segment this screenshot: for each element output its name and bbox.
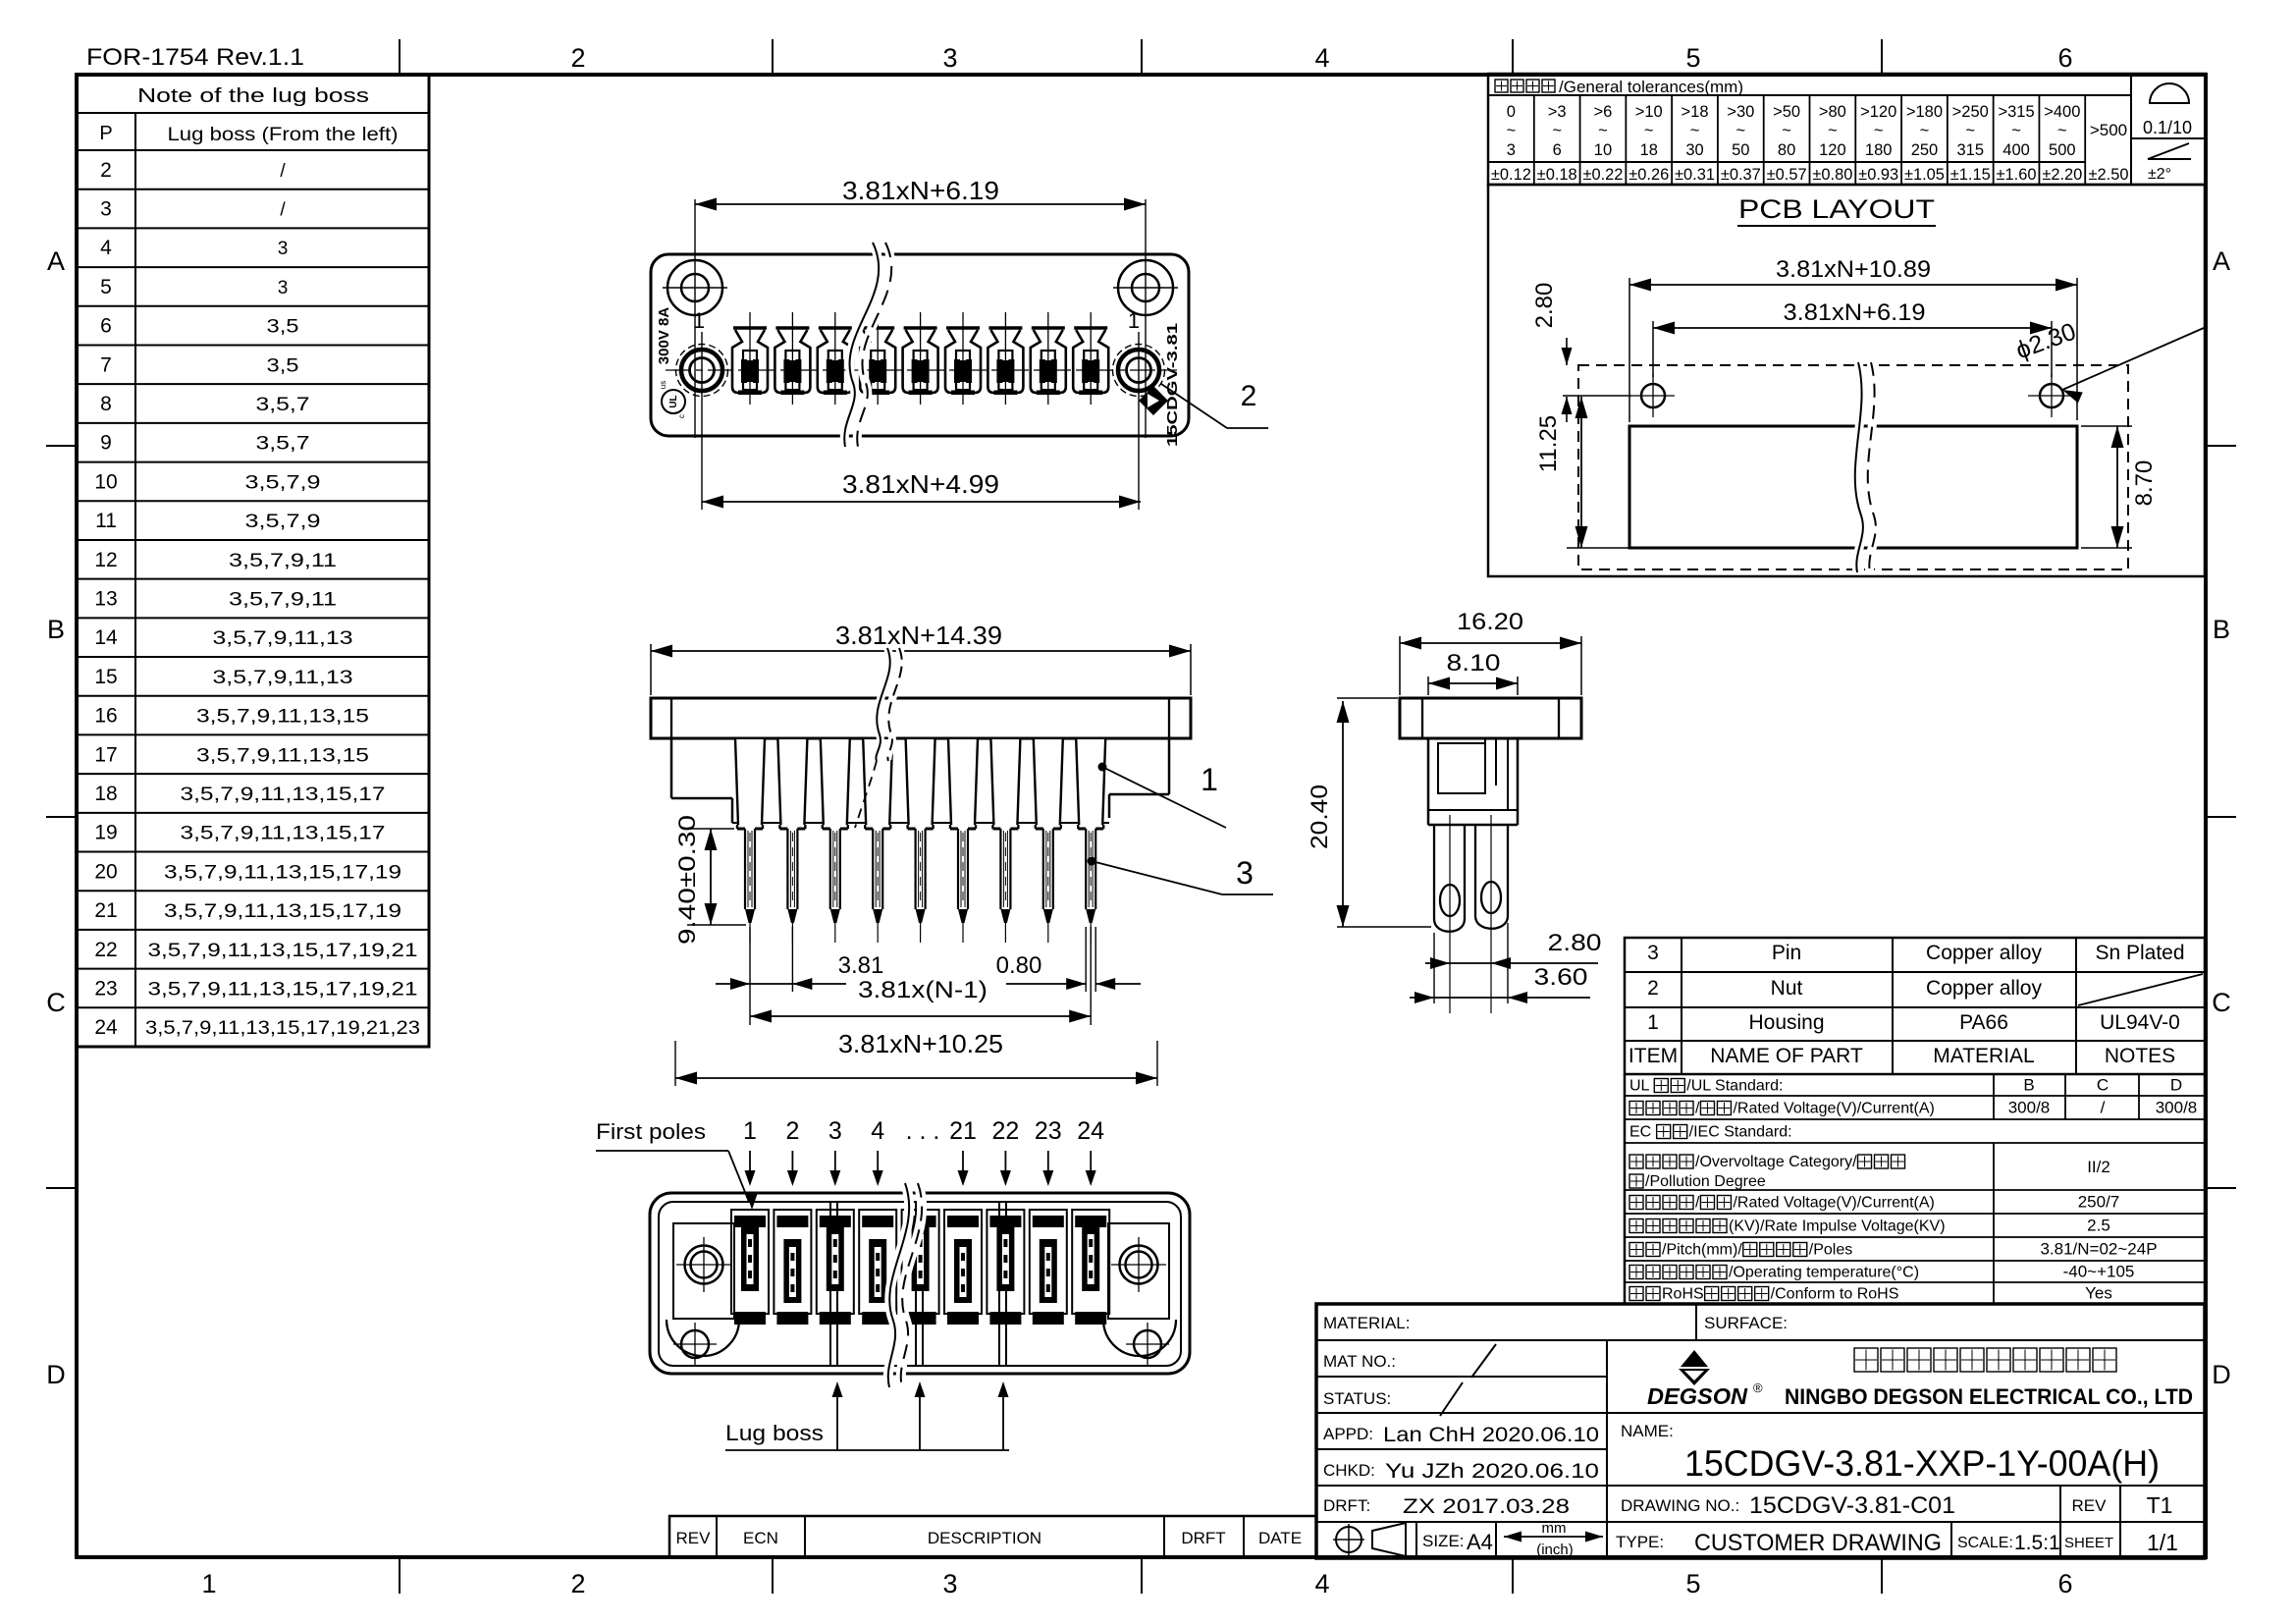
svg-text:>250: >250	[1952, 103, 1989, 121]
svg-text:22: 22	[94, 939, 117, 961]
svg-text:7: 7	[100, 353, 112, 376]
svg-text:Copper alloy: Copper alloy	[1926, 977, 2042, 1000]
svg-text:3,5,7,9,11,13,15: 3,5,7,9,11,13,15	[196, 745, 369, 766]
svg-text:(KV)/Rate Impulse Voltage(KV): (KV)/Rate Impulse Voltage(KV)	[1729, 1218, 1946, 1235]
svg-text:mm: mm	[1542, 1520, 1567, 1537]
svg-text:MAT NO.:: MAT NO.:	[1323, 1352, 1396, 1371]
svg-text:3,5,7: 3,5,7	[256, 395, 310, 415]
svg-text:3.81xN+14.39: 3.81xN+14.39	[835, 621, 1002, 650]
svg-text:DRFT: DRFT	[1181, 1529, 1225, 1547]
svg-text:A4: A4	[1467, 1530, 1493, 1554]
svg-text:>10: >10	[1635, 103, 1663, 121]
svg-text:A: A	[2213, 246, 2230, 276]
svg-text:CHKD:: CHKD:	[1323, 1461, 1375, 1480]
svg-text:2: 2	[570, 43, 585, 73]
svg-text:B: B	[47, 615, 65, 644]
svg-text:1: 1	[201, 1569, 216, 1598]
svg-text:11.25: 11.25	[1535, 415, 1562, 472]
svg-text:~: ~	[1507, 122, 1517, 139]
svg-text:~: ~	[1782, 122, 1791, 139]
svg-text:22: 22	[991, 1117, 1019, 1145]
svg-text:DRAWING NO.:: DRAWING NO.:	[1621, 1496, 1739, 1515]
svg-text:6: 6	[2057, 1569, 2072, 1598]
svg-text:0.80: 0.80	[996, 952, 1042, 979]
svg-text:3,5,7,9: 3,5,7,9	[245, 512, 321, 532]
svg-text:UL: UL	[668, 395, 679, 407]
svg-text:MATERIAL:: MATERIAL:	[1323, 1314, 1410, 1332]
svg-text:18: 18	[1640, 141, 1658, 159]
svg-text:SIZE:: SIZE:	[1422, 1532, 1465, 1550]
svg-text:3,5,7,9,11,13: 3,5,7,9,11,13	[213, 668, 353, 688]
svg-text:>50: >50	[1773, 103, 1800, 121]
svg-text:2.5: 2.5	[2087, 1217, 2110, 1235]
svg-text:>18: >18	[1682, 103, 1709, 121]
svg-text:4: 4	[871, 1117, 884, 1145]
svg-text:3: 3	[100, 198, 112, 221]
svg-text:3,5: 3,5	[267, 355, 299, 376]
svg-text:24: 24	[94, 1016, 118, 1039]
svg-text:2: 2	[100, 159, 112, 182]
svg-text:Yu JZh 2020.06.10: Yu JZh 2020.06.10	[1385, 1460, 1599, 1483]
svg-text:3,5,7,9: 3,5,7,9	[245, 472, 321, 493]
svg-text:~: ~	[1828, 122, 1838, 139]
svg-text:>6: >6	[1594, 103, 1613, 121]
svg-text:C: C	[2212, 988, 2231, 1017]
svg-text:±2°: ±2°	[2148, 166, 2171, 183]
svg-text:3.81x(N-1): 3.81x(N-1)	[858, 977, 988, 1003]
svg-text:EC: EC	[1629, 1124, 1651, 1141]
svg-text:SURFACE:: SURFACE:	[1704, 1314, 1788, 1332]
svg-text:~: ~	[1598, 122, 1608, 139]
svg-text:9: 9	[100, 432, 112, 455]
svg-text:3: 3	[1647, 942, 1659, 964]
svg-text:±2.50: ±2.50	[2089, 166, 2129, 184]
svg-text:5: 5	[100, 276, 112, 298]
svg-text:16: 16	[94, 705, 117, 728]
svg-text:10: 10	[94, 470, 117, 493]
svg-text:. . .: . . .	[906, 1117, 940, 1145]
svg-text:11: 11	[95, 510, 117, 532]
svg-text:500: 500	[2049, 141, 2076, 159]
svg-text:3,5,7,9,11: 3,5,7,9,11	[229, 551, 337, 571]
svg-text:CUSTOMER DRAWING: CUSTOMER DRAWING	[1694, 1530, 1942, 1556]
svg-text:3,5,7,9,11,13,15,17,19,21,23: 3,5,7,9,11,13,15,17,19,21,23	[145, 1018, 420, 1039]
svg-text:±0.22: ±0.22	[1582, 166, 1623, 184]
svg-text:~: ~	[1644, 122, 1654, 139]
svg-text:Lug boss (From the left): Lug boss (From the left)	[168, 125, 399, 145]
svg-text:1.5:1: 1.5:1	[2014, 1532, 2060, 1554]
svg-text:1: 1	[1128, 308, 1140, 333]
svg-text:400: 400	[2002, 141, 2030, 159]
svg-text:ECN: ECN	[743, 1529, 778, 1547]
svg-text:±0.31: ±0.31	[1675, 166, 1715, 184]
svg-text:3,5,7,9,11,13,15,17,19: 3,5,7,9,11,13,15,17,19	[164, 862, 401, 883]
svg-text:3,5,7,9,11,13,15,17,19,21: 3,5,7,9,11,13,15,17,19,21	[148, 941, 418, 961]
svg-text:±0.12: ±0.12	[1491, 166, 1531, 184]
svg-text:c: c	[677, 414, 686, 418]
svg-text:/Poles: /Poles	[1809, 1242, 1852, 1259]
svg-text:3: 3	[1507, 141, 1516, 159]
svg-text:19: 19	[94, 822, 117, 844]
svg-text:~: ~	[1690, 122, 1700, 139]
svg-text:±0.37: ±0.37	[1721, 166, 1761, 184]
svg-text:1: 1	[1201, 762, 1218, 797]
svg-text:~: ~	[1735, 122, 1745, 139]
svg-text:Pin: Pin	[1772, 942, 1801, 964]
svg-text:/: /	[1695, 1101, 1700, 1117]
svg-text:Sn Plated: Sn Plated	[2095, 942, 2184, 964]
svg-text:250: 250	[1911, 141, 1939, 159]
svg-text:/General tolerances(mm): /General tolerances(mm)	[1559, 78, 1743, 96]
svg-text:/UL Standard:: /UL Standard:	[1686, 1078, 1783, 1095]
svg-text:17: 17	[94, 743, 117, 766]
svg-text:~: ~	[1874, 122, 1884, 139]
svg-text:D: D	[2212, 1360, 2231, 1389]
svg-text:16.20: 16.20	[1457, 609, 1523, 635]
svg-text:PCB LAYOUT: PCB LAYOUT	[1738, 194, 1935, 224]
svg-text:3,5,7,9,11,13,15,17,19,21: 3,5,7,9,11,13,15,17,19,21	[148, 979, 418, 1000]
svg-text:80: 80	[1778, 141, 1795, 159]
svg-text:3.81xN+10.89: 3.81xN+10.89	[1776, 256, 1931, 283]
svg-text:12: 12	[94, 549, 117, 571]
svg-text:APPD:: APPD:	[1323, 1425, 1373, 1443]
svg-text:FOR-1754 Rev.1.1: FOR-1754 Rev.1.1	[86, 44, 304, 71]
svg-text:REV: REV	[676, 1529, 712, 1547]
svg-text:DATE: DATE	[1258, 1529, 1302, 1547]
svg-text:B: B	[2213, 615, 2230, 644]
svg-text:/Conform to RoHS: /Conform to RoHS	[1771, 1286, 1899, 1303]
svg-text:>400: >400	[2044, 103, 2080, 121]
svg-text:STATUS:: STATUS:	[1323, 1389, 1391, 1408]
svg-text:300V 8A: 300V 8A	[656, 307, 672, 365]
svg-text:Copper alloy: Copper alloy	[1926, 942, 2042, 964]
svg-text:Lan ChH 2020.06.10: Lan ChH 2020.06.10	[1383, 1424, 1599, 1446]
svg-text:Yes: Yes	[2085, 1284, 2112, 1303]
svg-text:120: 120	[1819, 141, 1846, 159]
svg-text:>315: >315	[1998, 103, 2034, 121]
svg-text:±0.18: ±0.18	[1537, 166, 1577, 184]
svg-text:±1.60: ±1.60	[1997, 166, 2037, 184]
svg-text:±0.57: ±0.57	[1767, 166, 1807, 184]
svg-text:/Overvoltage Category/: /Overvoltage Category/	[1695, 1154, 1857, 1170]
svg-text:~: ~	[1552, 122, 1562, 139]
svg-text:C: C	[46, 988, 66, 1017]
svg-text:>180: >180	[1906, 103, 1943, 121]
svg-text:20.40: 20.40	[1307, 785, 1333, 849]
svg-text:~: ~	[2011, 122, 2021, 139]
svg-text:5: 5	[1685, 1569, 1700, 1598]
svg-text:SCALE:: SCALE:	[1957, 1535, 2013, 1551]
svg-text:>30: >30	[1727, 103, 1754, 121]
svg-text:2.80: 2.80	[1548, 930, 1602, 956]
svg-text:6: 6	[2057, 43, 2072, 73]
svg-text:C: C	[2097, 1076, 2109, 1095]
svg-text:3: 3	[1236, 855, 1254, 891]
svg-text:3,5,7,9,11,13,15,17: 3,5,7,9,11,13,15,17	[181, 785, 386, 805]
svg-text:10: 10	[1594, 141, 1612, 159]
svg-text:2.80: 2.80	[1531, 283, 1558, 329]
svg-text:/: /	[1695, 1195, 1700, 1212]
svg-text:>120: >120	[1860, 103, 1896, 121]
svg-text:2: 2	[570, 1569, 585, 1598]
svg-text:DEGSON: DEGSON	[1647, 1383, 1747, 1409]
svg-text:0.1/10: 0.1/10	[2143, 118, 2192, 137]
svg-text:±0.93: ±0.93	[1858, 166, 1898, 184]
svg-text:3.81xN+10.25: 3.81xN+10.25	[838, 1029, 1003, 1058]
svg-text:3: 3	[828, 1117, 842, 1145]
svg-text:UL: UL	[1629, 1078, 1650, 1095]
svg-text:23: 23	[1035, 1117, 1062, 1145]
svg-text:24: 24	[1077, 1117, 1104, 1145]
svg-text:-40~+105: -40~+105	[2063, 1263, 2135, 1281]
svg-text:®: ®	[1753, 1380, 1763, 1395]
svg-text:/: /	[280, 200, 286, 221]
svg-text:/: /	[2101, 1099, 2106, 1117]
svg-text:>3: >3	[1548, 103, 1567, 121]
svg-text:180: 180	[1865, 141, 1893, 159]
svg-text:SHEET: SHEET	[2064, 1535, 2113, 1551]
svg-text:4: 4	[1314, 1569, 1329, 1598]
svg-text:DESCRIPTION: DESCRIPTION	[928, 1529, 1041, 1547]
svg-text:±0.80: ±0.80	[1812, 166, 1852, 184]
svg-text:1: 1	[693, 308, 705, 333]
svg-text:4: 4	[100, 237, 112, 259]
svg-text:3.60: 3.60	[1534, 964, 1588, 991]
svg-text:3: 3	[942, 43, 957, 73]
svg-text:3.81/N=02~24P: 3.81/N=02~24P	[2040, 1240, 2157, 1259]
svg-text:First poles: First poles	[596, 1119, 706, 1144]
svg-text:15: 15	[94, 666, 117, 688]
svg-text:/Pollution Degree: /Pollution Degree	[1645, 1173, 1766, 1190]
svg-text:21: 21	[94, 899, 117, 922]
svg-text:3.81xN+6.19: 3.81xN+6.19	[842, 176, 999, 205]
svg-text:ITEM: ITEM	[1629, 1045, 1678, 1067]
svg-text:>500: >500	[2090, 121, 2127, 139]
svg-text:Lug boss: Lug boss	[725, 1421, 824, 1445]
svg-text:NINGBO DEGSON ELECTRICAL CO.,: NINGBO DEGSON ELECTRICAL CO., LTD	[1785, 1384, 2193, 1409]
svg-text:1/1: 1/1	[2147, 1530, 2178, 1555]
svg-text:MATERIAL: MATERIAL	[1933, 1045, 2034, 1067]
svg-text:3,5,7,9,11: 3,5,7,9,11	[229, 590, 337, 611]
svg-text:D: D	[2170, 1076, 2182, 1095]
svg-text:>80: >80	[1819, 103, 1846, 121]
svg-text:0: 0	[1507, 103, 1516, 121]
svg-text:3: 3	[942, 1569, 957, 1598]
svg-text:15CDGV-3.81-C01: 15CDGV-3.81-C01	[1749, 1492, 1955, 1519]
svg-text:2: 2	[1241, 380, 1257, 412]
svg-text:20: 20	[94, 860, 117, 883]
svg-text:ZX 2017.03.28: ZX 2017.03.28	[1403, 1495, 1570, 1518]
svg-text:1: 1	[743, 1117, 757, 1145]
svg-text:8.10: 8.10	[1447, 650, 1501, 677]
svg-text:300/8: 300/8	[2156, 1099, 2198, 1117]
svg-text:3: 3	[278, 278, 289, 298]
svg-text:4: 4	[1314, 43, 1329, 73]
svg-text:14: 14	[94, 626, 118, 649]
svg-text:50: 50	[1732, 141, 1749, 159]
svg-text:II/2: II/2	[2087, 1158, 2110, 1176]
svg-text:3.81: 3.81	[838, 952, 884, 979]
svg-text:A: A	[47, 246, 65, 276]
svg-text:D: D	[46, 1360, 66, 1389]
svg-text:5: 5	[1685, 43, 1700, 73]
svg-text:18: 18	[94, 783, 117, 805]
svg-text:~: ~	[1920, 122, 1930, 139]
svg-text:±0.26: ±0.26	[1629, 166, 1669, 184]
svg-text:8: 8	[100, 393, 112, 415]
svg-text:B: B	[2023, 1076, 2034, 1095]
svg-text:/Rated Voltage(V)/Current(A): /Rated Voltage(V)/Current(A)	[1733, 1195, 1934, 1212]
svg-text:~: ~	[2057, 122, 2067, 139]
svg-text:15CDGV-3.81-XXP-1Y-00A(H): 15CDGV-3.81-XXP-1Y-00A(H)	[1684, 1443, 2160, 1484]
svg-text:DRFT:: DRFT:	[1323, 1496, 1370, 1515]
svg-text:TYPE:: TYPE:	[1616, 1533, 1664, 1551]
svg-text:T1: T1	[2147, 1492, 2173, 1518]
svg-text:3,5,7,9,11,13,15: 3,5,7,9,11,13,15	[196, 707, 369, 728]
svg-text:6: 6	[100, 315, 112, 338]
svg-text:2: 2	[785, 1117, 799, 1145]
svg-text:3,5,7: 3,5,7	[256, 434, 310, 455]
svg-text:±2.20: ±2.20	[2042, 166, 2082, 184]
svg-text:RoHS: RoHS	[1662, 1286, 1704, 1303]
svg-text:/Operating temperature(°C): /Operating temperature(°C)	[1729, 1265, 1919, 1281]
svg-text:NAME:: NAME:	[1621, 1422, 1674, 1440]
svg-text:REV: REV	[2072, 1496, 2108, 1515]
svg-text:UL94V-0: UL94V-0	[2100, 1011, 2180, 1034]
svg-text:3,5,7,9,11,13,15,17: 3,5,7,9,11,13,15,17	[181, 824, 386, 844]
svg-text:/: /	[280, 161, 286, 182]
svg-text:8.70: 8.70	[2131, 460, 2158, 507]
svg-text:3.81xN+6.19: 3.81xN+6.19	[1784, 299, 1926, 326]
svg-text:6: 6	[1553, 141, 1562, 159]
svg-text:±1.05: ±1.05	[1904, 166, 1945, 184]
svg-text:3,5,7,9,11,13: 3,5,7,9,11,13	[213, 628, 353, 649]
svg-text:15CDGV-3.81: 15CDGV-3.81	[1164, 323, 1181, 447]
svg-text:Housing: Housing	[1748, 1011, 1824, 1034]
svg-text:3,5: 3,5	[267, 317, 299, 338]
svg-text:23: 23	[94, 977, 117, 1000]
svg-text:±1.15: ±1.15	[1950, 166, 1991, 184]
svg-text:Note of the lug boss: Note of the lug boss	[137, 85, 369, 107]
svg-text:30: 30	[1685, 141, 1703, 159]
svg-text:Nut: Nut	[1771, 977, 1803, 1000]
svg-text:/Pitch(mm)/: /Pitch(mm)/	[1662, 1242, 1742, 1259]
svg-text:NOTES: NOTES	[2105, 1045, 2175, 1067]
svg-text:/Rated Voltage(V)/Current(A): /Rated Voltage(V)/Current(A)	[1733, 1101, 1934, 1117]
svg-text:21: 21	[949, 1117, 977, 1145]
svg-text:315: 315	[1956, 141, 1984, 159]
svg-text:250/7: 250/7	[2078, 1193, 2120, 1212]
svg-text:us: us	[659, 381, 667, 389]
svg-text:~: ~	[1965, 122, 1975, 139]
svg-text:/IEC Standard:: /IEC Standard:	[1689, 1124, 1792, 1141]
svg-text:PA66: PA66	[1959, 1011, 2008, 1034]
svg-text:NAME OF PART: NAME OF PART	[1710, 1045, 1863, 1067]
svg-text:3,5,7,9,11,13,15,17,19: 3,5,7,9,11,13,15,17,19	[164, 901, 401, 922]
svg-text:13: 13	[94, 588, 117, 611]
svg-text:(inch): (inch)	[1536, 1542, 1574, 1558]
svg-text:3: 3	[278, 239, 289, 259]
svg-text:3.81xN+4.99: 3.81xN+4.99	[842, 469, 999, 499]
svg-text:1: 1	[1647, 1011, 1659, 1034]
svg-text:2: 2	[1647, 977, 1659, 1000]
svg-text:300/8: 300/8	[2008, 1099, 2051, 1117]
svg-text:P: P	[99, 123, 112, 144]
